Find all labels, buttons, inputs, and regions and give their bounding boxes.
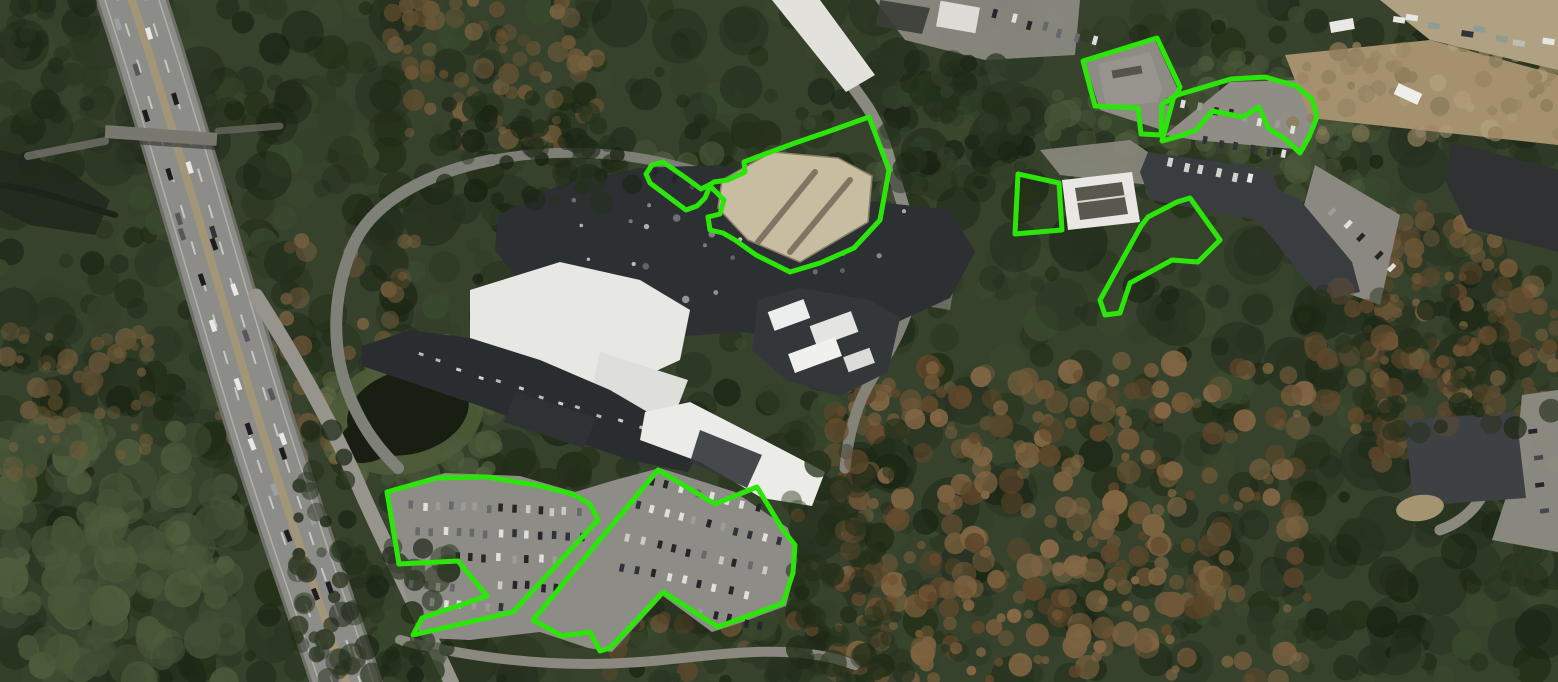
crossroad-east-stub xyxy=(218,126,280,131)
aerial-image-viewer xyxy=(0,0,1558,682)
map-canvas[interactable] xyxy=(0,0,1558,682)
